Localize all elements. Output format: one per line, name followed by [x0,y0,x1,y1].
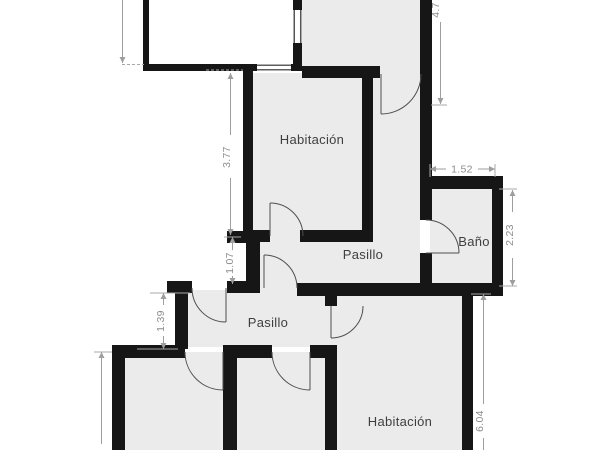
dimension-bottom-left-height: 3 [92,352,112,450]
dimension-upper-right-height: 4.7 [430,2,447,105]
dim-label-2-23: 2.23 [504,224,516,246]
dimension-topleft-room [120,0,145,65]
dim-label-6-04: 6.04 [474,410,486,432]
room-bathroom-label: Baño [458,234,490,249]
room-hallway-upper-label: Pasillo [343,247,383,262]
floorplan-page: 3.77 1.07 1.39 1.52 2.23 [0,0,600,450]
room-bottom-middle-floor [230,352,330,450]
room-upper-right-floor [302,0,420,66]
window-top-horizontal [257,64,291,71]
dim-label-3-77: 3.77 [221,146,233,168]
dim-label-1-07: 1.07 [224,252,236,274]
dimension-bathroom-width: 1.52 [430,164,495,178]
dim-label-1-39: 1.39 [155,310,167,332]
room-hallway-lower-label: Pasillo [248,315,288,330]
dim-label-4-7: 4.7 [430,2,442,18]
dimension-bedroom-top-height: 3.77 [206,70,243,235]
walls-thin-topleft-room [143,0,302,71]
room-bedroom-top-label: Habitación [280,132,344,147]
dimension-bedroom-bottom-height: 6.04 [471,294,491,450]
room-bedroom-bottom-label: Habitación [368,414,432,429]
room-bottom-left-floor [120,352,230,450]
dim-label-1-52: 1.52 [451,164,473,176]
window-left-vertical [293,10,302,43]
dimension-hallway-left-wall: 1.07 [224,237,241,284]
floorplan-canvas: 3.77 1.07 1.39 1.52 2.23 [0,0,600,450]
room-bedroom-top-floor [253,73,362,240]
